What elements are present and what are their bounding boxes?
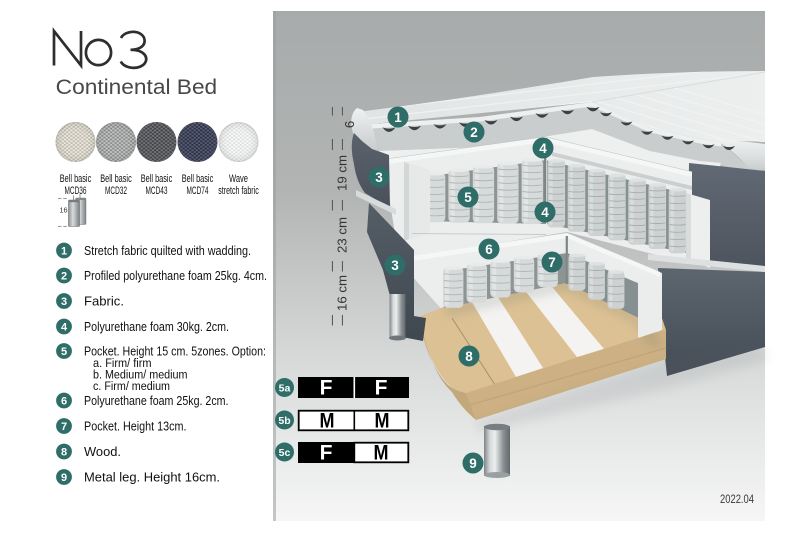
svg-text:c. Firm/ medium: c. Firm/ medium	[93, 379, 170, 393]
svg-text:16 cm: 16 cm	[334, 275, 349, 311]
svg-text:6: 6	[485, 242, 493, 257]
svg-text:Bell basic: Bell basic	[182, 173, 214, 185]
svg-text:8: 8	[465, 349, 473, 364]
svg-text:Bell basic: Bell basic	[100, 173, 132, 185]
svg-text:M: M	[320, 410, 335, 433]
svg-text:MCD43: MCD43	[146, 185, 168, 197]
svg-text:5: 5	[61, 346, 67, 358]
svg-text:7: 7	[548, 255, 556, 270]
svg-text:4: 4	[541, 205, 549, 220]
svg-text:Continental Bed: Continental Bed	[56, 76, 218, 99]
svg-text:5b: 5b	[278, 415, 290, 427]
svg-text:23 cm: 23 cm	[334, 217, 349, 253]
svg-text:6: 6	[61, 395, 67, 407]
svg-text:MCD36: MCD36	[65, 185, 87, 197]
svg-text:7: 7	[61, 421, 67, 433]
svg-text:16: 16	[60, 206, 68, 215]
svg-text:F: F	[320, 442, 333, 465]
svg-text:6: 6	[342, 121, 357, 128]
svg-text:4: 4	[61, 321, 68, 333]
svg-text:MCD74: MCD74	[187, 185, 209, 197]
svg-text:Bell basic: Bell basic	[141, 173, 173, 185]
svg-text:2022.04: 2022.04	[720, 494, 754, 506]
svg-text:M: M	[374, 442, 389, 465]
svg-text:5a: 5a	[279, 382, 291, 394]
svg-text:F: F	[375, 377, 388, 400]
svg-text:Wood.: Wood.	[84, 445, 121, 459]
svg-text:MCD32: MCD32	[105, 185, 127, 197]
svg-text:Metal leg. Height 16cm.: Metal leg. Height 16cm.	[84, 470, 220, 484]
svg-text:1: 1	[61, 245, 67, 257]
svg-text:Wave: Wave	[229, 173, 248, 185]
svg-text:4: 4	[539, 141, 547, 156]
svg-text:3: 3	[375, 170, 383, 185]
svg-text:Polyurethane foam 25kg. 2cm.: Polyurethane foam 25kg. 2cm.	[84, 394, 229, 408]
svg-text:5: 5	[464, 190, 472, 205]
svg-text:F: F	[320, 377, 333, 400]
svg-text:Bell basic: Bell basic	[60, 173, 92, 185]
svg-text:9: 9	[61, 472, 67, 484]
svg-text:5c: 5c	[279, 447, 291, 459]
svg-text:M: M	[375, 410, 390, 433]
svg-text:1: 1	[394, 110, 402, 125]
svg-text:8: 8	[61, 446, 67, 458]
svg-text:2: 2	[470, 125, 478, 140]
svg-text:19 cm: 19 cm	[334, 155, 349, 191]
svg-text:stretch fabric: stretch fabric	[218, 185, 259, 197]
svg-text:2: 2	[61, 270, 67, 282]
svg-text:3: 3	[391, 258, 399, 273]
svg-text:Polyurethane foam 30kg. 2cm.: Polyurethane foam 30kg. 2cm.	[84, 320, 229, 334]
svg-text:Stretch fabric quilted with wa: Stretch fabric quilted with wadding.	[84, 244, 251, 258]
svg-text:Pocket. Height 13cm.: Pocket. Height 13cm.	[84, 419, 187, 433]
svg-text:9: 9	[469, 456, 477, 471]
svg-text:Fabric.: Fabric.	[84, 294, 124, 308]
svg-text:Profiled polyurethane foam 25k: Profiled polyurethane foam 25kg. 4cm.	[84, 269, 267, 283]
svg-text:3: 3	[61, 296, 67, 308]
